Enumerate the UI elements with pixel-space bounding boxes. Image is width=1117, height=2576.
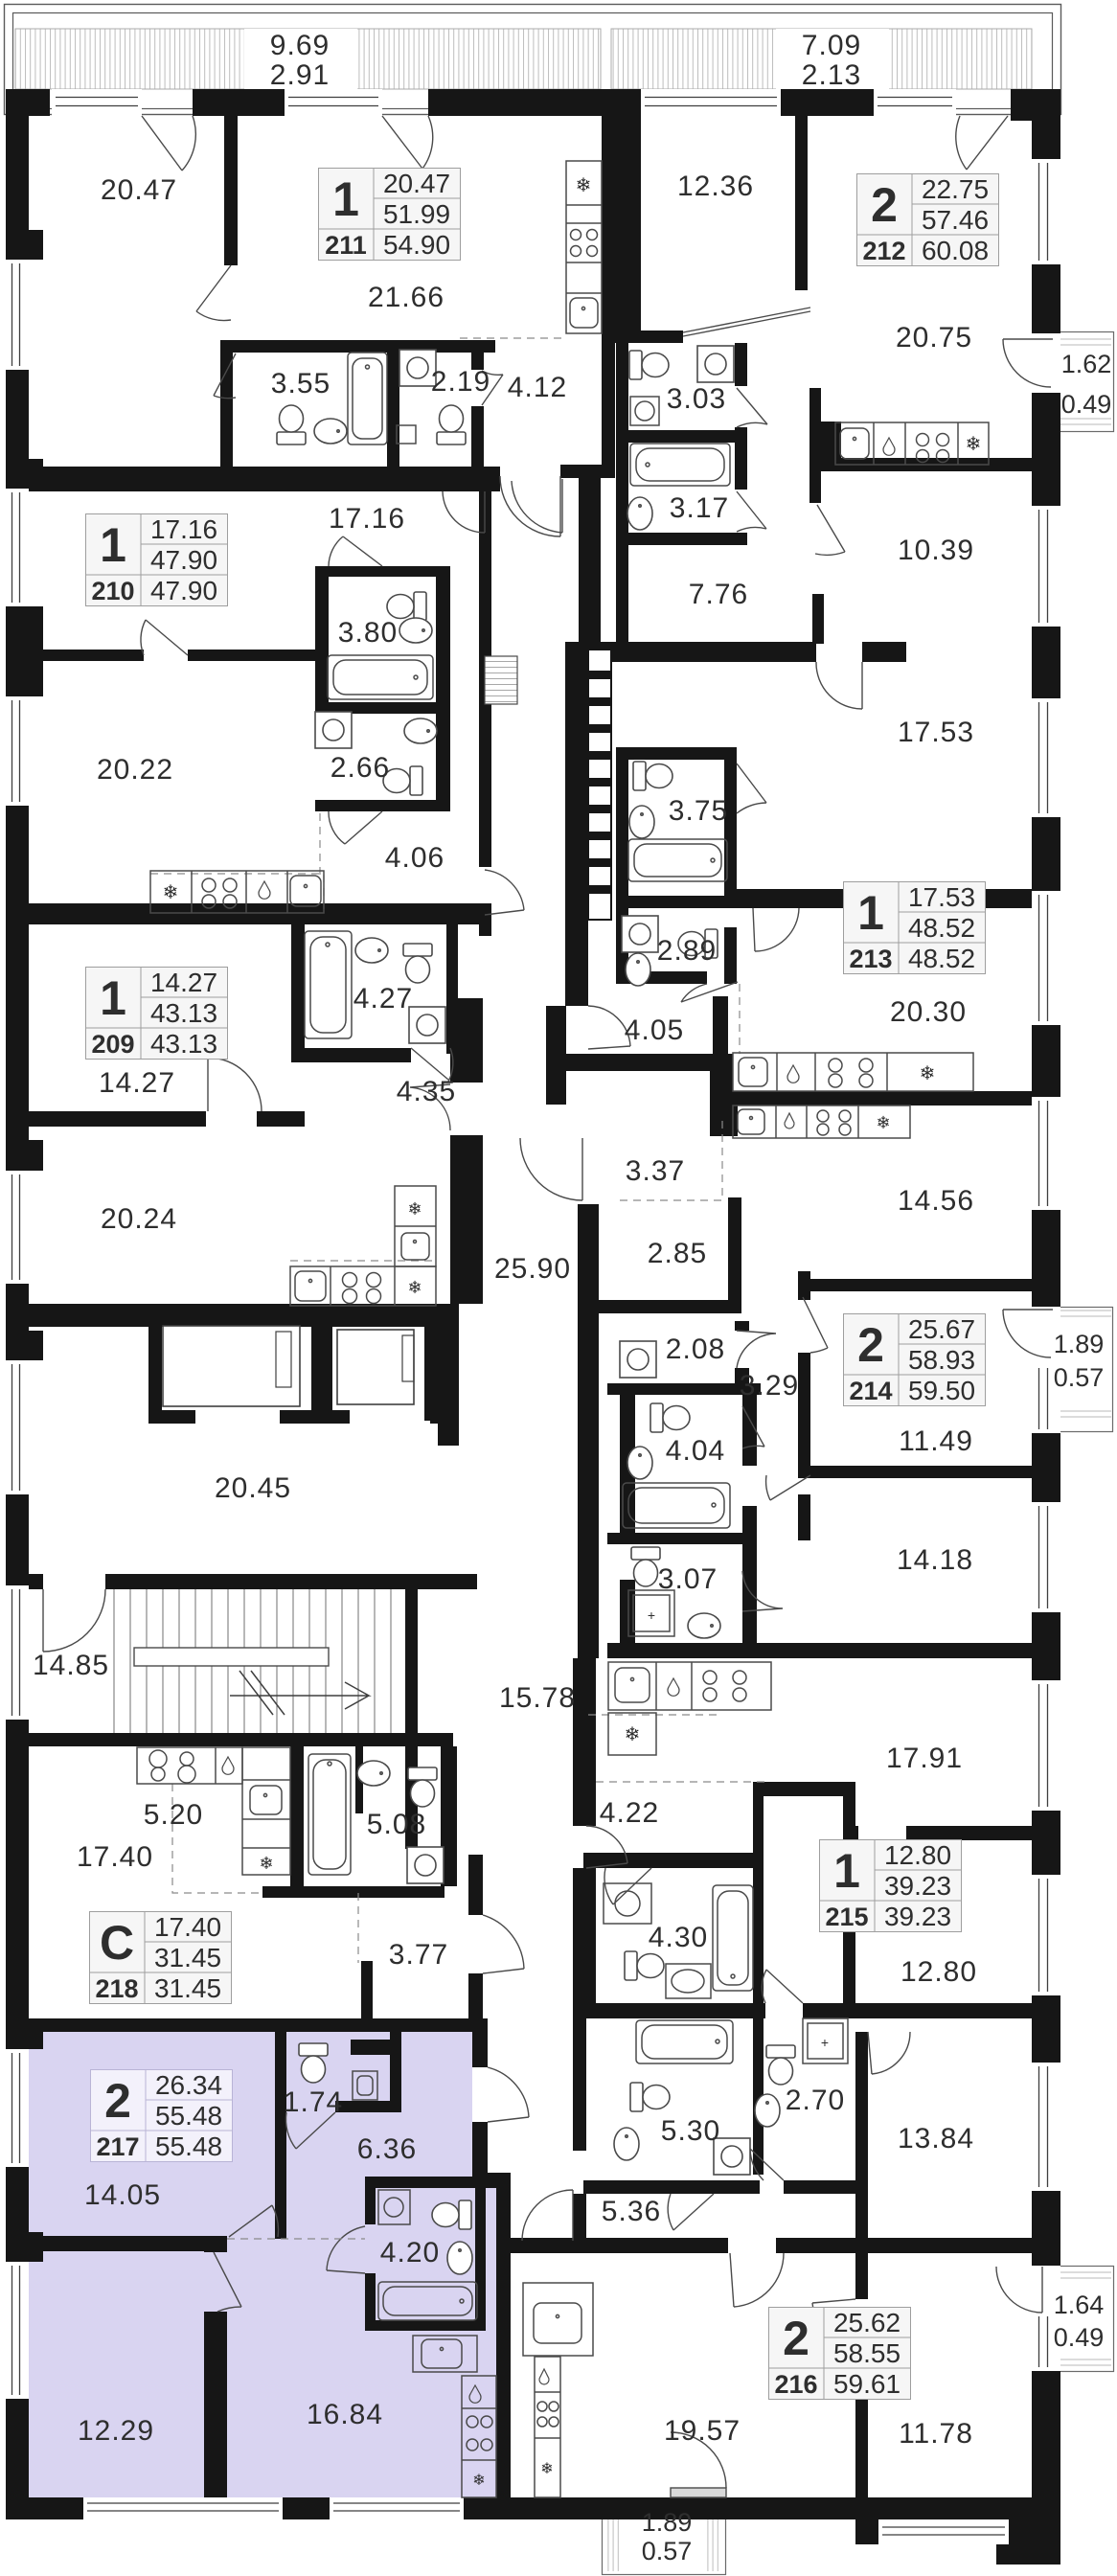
svg-text:1.64: 1.64 — [1054, 2291, 1105, 2319]
svg-text:43.13: 43.13 — [150, 1029, 217, 1059]
svg-text:25.90: 25.90 — [494, 1253, 571, 1285]
svg-text:❄: ❄ — [472, 2473, 485, 2489]
svg-text:5.30: 5.30 — [661, 2115, 720, 2147]
svg-text:0.57: 0.57 — [1054, 1363, 1105, 1392]
svg-text:1.74: 1.74 — [284, 2086, 343, 2118]
svg-text:❄: ❄ — [407, 1199, 422, 1219]
svg-text:3.37: 3.37 — [626, 1155, 685, 1187]
svg-text:58.93: 58.93 — [908, 1345, 975, 1375]
svg-text:43.13: 43.13 — [150, 998, 217, 1028]
svg-text:4.12: 4.12 — [508, 372, 567, 403]
svg-text:48.52: 48.52 — [908, 913, 975, 943]
svg-text:1: 1 — [833, 1844, 860, 1898]
svg-text:1: 1 — [100, 971, 126, 1025]
svg-text:4.22: 4.22 — [600, 1797, 659, 1829]
svg-text:14.05: 14.05 — [84, 2179, 161, 2211]
svg-text:47.90: 47.90 — [150, 545, 217, 575]
svg-text:7.09: 7.09 — [802, 30, 861, 61]
svg-text:21.66: 21.66 — [368, 282, 445, 313]
svg-text:13.84: 13.84 — [898, 2123, 974, 2154]
svg-text:3.29: 3.29 — [740, 1370, 799, 1402]
svg-text:❄: ❄ — [407, 1278, 422, 1297]
svg-text:5.08: 5.08 — [367, 1809, 426, 1840]
svg-text:17.16: 17.16 — [150, 514, 217, 544]
svg-text:0.49: 0.49 — [1054, 2323, 1105, 2352]
svg-text:11.78: 11.78 — [899, 2418, 973, 2450]
svg-text:2.89: 2.89 — [657, 935, 717, 967]
svg-text:3.07: 3.07 — [658, 1563, 718, 1595]
svg-text:20.47: 20.47 — [101, 174, 177, 206]
svg-text:C: C — [100, 1916, 134, 1970]
svg-text:2.13: 2.13 — [802, 59, 861, 91]
svg-text:14.18: 14.18 — [897, 1544, 973, 1576]
svg-text:4.35: 4.35 — [397, 1076, 456, 1107]
svg-text:20.47: 20.47 — [383, 169, 450, 198]
svg-text:215: 215 — [825, 1903, 868, 1931]
svg-text:22.75: 22.75 — [922, 174, 989, 204]
svg-text:3.77: 3.77 — [389, 1939, 448, 1971]
svg-text:+: + — [821, 2035, 829, 2050]
svg-text:19.57: 19.57 — [664, 2415, 741, 2447]
svg-text:48.52: 48.52 — [908, 944, 975, 973]
svg-text:39.23: 39.23 — [884, 1871, 951, 1901]
svg-text:1: 1 — [100, 518, 126, 572]
svg-text:15.78: 15.78 — [499, 1682, 576, 1714]
svg-text:2: 2 — [783, 2312, 809, 2365]
svg-text:0.57: 0.57 — [642, 2537, 693, 2565]
svg-text:2: 2 — [871, 178, 898, 232]
svg-text:55.48: 55.48 — [155, 2131, 222, 2161]
svg-text:55.48: 55.48 — [155, 2101, 222, 2131]
svg-text:20.45: 20.45 — [215, 1472, 291, 1504]
svg-text:2.66: 2.66 — [331, 752, 390, 784]
svg-text:47.90: 47.90 — [150, 576, 217, 605]
svg-text:❄: ❄ — [540, 2461, 553, 2477]
svg-text:59.61: 59.61 — [833, 2369, 900, 2399]
svg-text:12.36: 12.36 — [677, 171, 754, 202]
svg-text:25.62: 25.62 — [833, 2308, 900, 2337]
svg-text:57.46: 57.46 — [922, 205, 989, 235]
svg-text:210: 210 — [91, 577, 134, 605]
svg-text:60.08: 60.08 — [922, 236, 989, 265]
svg-text:214: 214 — [849, 1377, 892, 1405]
svg-text:4.04: 4.04 — [666, 1435, 725, 1467]
svg-text:217: 217 — [96, 2132, 139, 2161]
svg-text:3.55: 3.55 — [271, 368, 331, 399]
svg-text:26.34: 26.34 — [155, 2070, 222, 2100]
svg-text:12.80: 12.80 — [900, 1956, 977, 1988]
svg-text:31.45: 31.45 — [154, 1973, 221, 2003]
svg-text:3.17: 3.17 — [670, 492, 729, 524]
svg-text:16.84: 16.84 — [307, 2399, 383, 2430]
svg-text:17.40: 17.40 — [154, 1912, 221, 1942]
svg-text:❄: ❄ — [163, 882, 179, 903]
svg-text:17.40: 17.40 — [77, 1841, 153, 1873]
svg-text:2: 2 — [104, 2074, 131, 2128]
svg-text:❄: ❄ — [625, 1724, 641, 1745]
svg-text:❄: ❄ — [259, 1854, 273, 1873]
svg-text:59.50: 59.50 — [908, 1376, 975, 1405]
svg-text:14.27: 14.27 — [99, 1067, 175, 1099]
svg-text:4.05: 4.05 — [625, 1014, 684, 1046]
svg-text:20.22: 20.22 — [97, 754, 173, 786]
svg-text:17.53: 17.53 — [908, 882, 975, 912]
svg-text:2.85: 2.85 — [648, 1238, 707, 1269]
svg-text:❄: ❄ — [876, 1113, 890, 1132]
svg-text:17.16: 17.16 — [329, 503, 405, 535]
svg-text:1.89: 1.89 — [642, 2508, 693, 2537]
svg-text:212: 212 — [862, 237, 905, 265]
svg-text:25.67: 25.67 — [908, 1314, 975, 1344]
svg-text:4.06: 4.06 — [385, 842, 445, 874]
svg-text:10.39: 10.39 — [898, 535, 974, 566]
svg-text:54.90: 54.90 — [383, 230, 450, 260]
svg-text:4.27: 4.27 — [353, 983, 413, 1014]
svg-text:4.30: 4.30 — [649, 1922, 708, 1953]
svg-text:+: + — [648, 1607, 655, 1623]
svg-text:9.69: 9.69 — [270, 30, 330, 61]
svg-text:0.49: 0.49 — [1061, 390, 1112, 419]
svg-text:1: 1 — [332, 172, 359, 226]
svg-text:31.45: 31.45 — [154, 1943, 221, 1972]
svg-text:209: 209 — [91, 1030, 134, 1059]
svg-text:1: 1 — [857, 886, 884, 940]
svg-text:2.08: 2.08 — [666, 1334, 725, 1365]
svg-text:218: 218 — [95, 1974, 138, 2003]
svg-text:20.75: 20.75 — [896, 322, 972, 353]
svg-text:2.91: 2.91 — [270, 59, 330, 91]
svg-text:211: 211 — [325, 231, 367, 260]
svg-text:11.49: 11.49 — [899, 1425, 973, 1457]
svg-text:213: 213 — [849, 945, 892, 973]
svg-text:58.55: 58.55 — [833, 2338, 900, 2368]
svg-text:6.36: 6.36 — [357, 2133, 417, 2165]
svg-text:14.85: 14.85 — [33, 1650, 109, 1681]
svg-text:5.36: 5.36 — [602, 2196, 661, 2227]
svg-text:216: 216 — [774, 2370, 817, 2399]
svg-text:20.24: 20.24 — [101, 1203, 177, 1235]
svg-text:12.80: 12.80 — [884, 1840, 951, 1870]
svg-text:20.30: 20.30 — [890, 996, 967, 1028]
svg-text:❄: ❄ — [920, 1063, 936, 1084]
svg-text:51.99: 51.99 — [383, 199, 450, 229]
svg-text:2.70: 2.70 — [786, 2085, 845, 2116]
svg-text:❄: ❄ — [966, 434, 982, 455]
svg-text:1.62: 1.62 — [1061, 350, 1112, 378]
svg-text:4.20: 4.20 — [380, 2237, 440, 2268]
svg-text:2.19: 2.19 — [431, 366, 490, 398]
svg-text:17.53: 17.53 — [898, 717, 974, 748]
svg-text:17.91: 17.91 — [886, 1743, 963, 1774]
svg-text:5.20: 5.20 — [144, 1799, 203, 1831]
svg-text:2: 2 — [857, 1318, 884, 1372]
svg-text:12.29: 12.29 — [78, 2415, 154, 2447]
svg-text:1.89: 1.89 — [1054, 1330, 1105, 1358]
svg-text:39.23: 39.23 — [884, 1902, 951, 1931]
svg-text:3.03: 3.03 — [667, 383, 726, 415]
svg-text:3.75: 3.75 — [669, 795, 728, 827]
svg-text:14.27: 14.27 — [150, 968, 217, 997]
svg-text:❄: ❄ — [576, 175, 592, 196]
svg-text:3.80: 3.80 — [338, 617, 398, 649]
svg-text:14.56: 14.56 — [898, 1185, 974, 1217]
svg-text:7.76: 7.76 — [689, 579, 748, 610]
